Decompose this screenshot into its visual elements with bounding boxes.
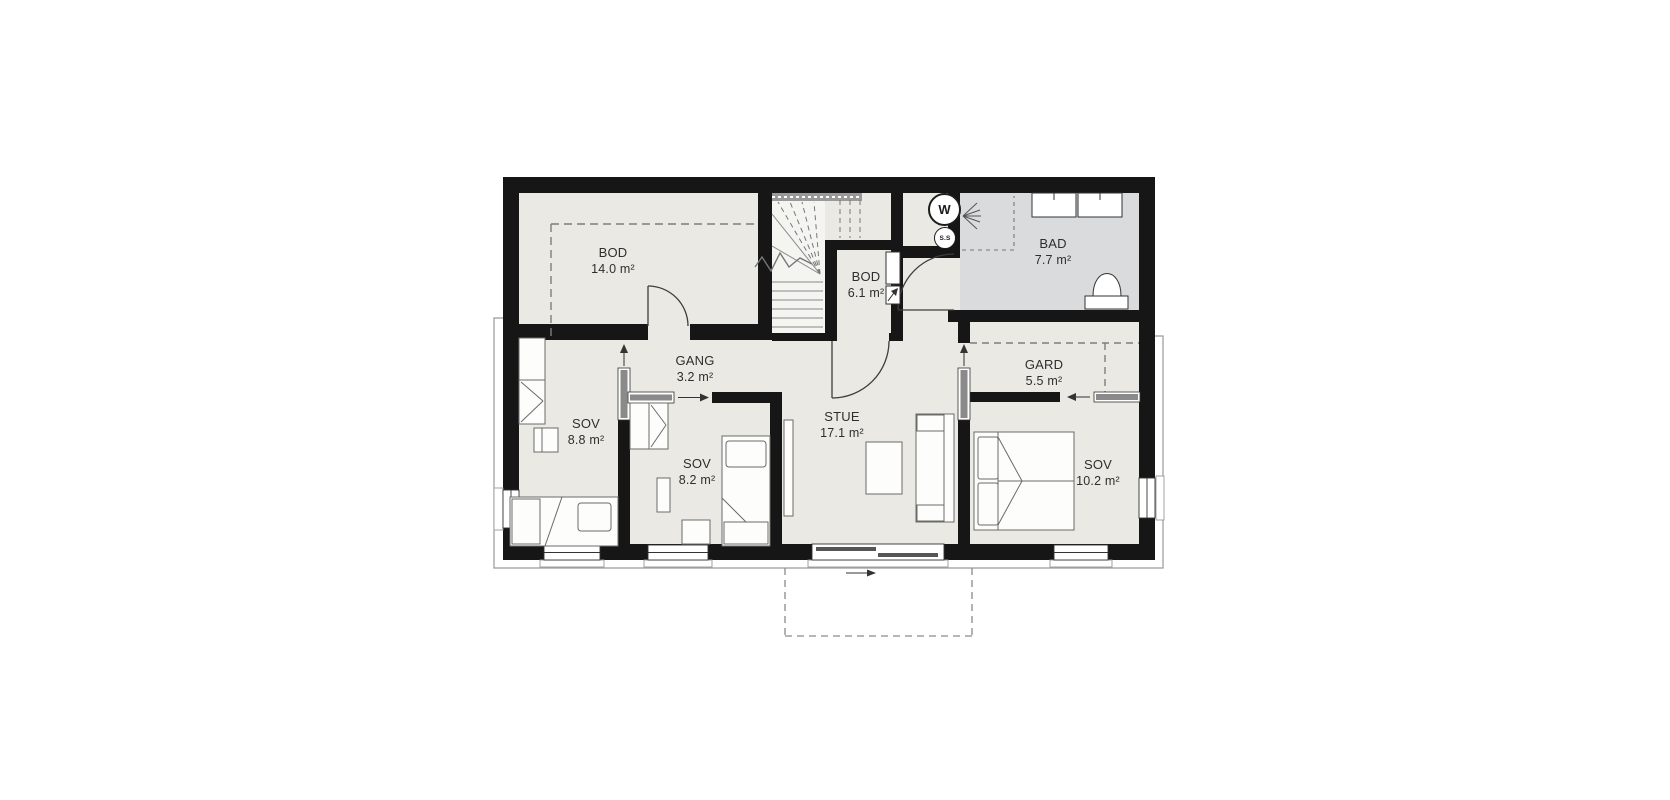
room-name: BOD	[591, 245, 635, 261]
room-name: SOV	[568, 416, 605, 432]
stairwell-floor	[772, 200, 825, 333]
terrace-outline	[785, 568, 972, 636]
room-area: 17.1 m²	[820, 425, 864, 441]
room-area: 7.7 m²	[1035, 252, 1072, 268]
ss-icon: S.S	[934, 227, 956, 249]
room-label-bad: BAD 7.7 m²	[1035, 236, 1072, 268]
floor-plan-canvas	[0, 0, 1670, 800]
room-label-bod14: BOD 14.0 m²	[591, 245, 635, 277]
window-sov102-right	[1139, 476, 1164, 520]
sofa-stue	[916, 414, 954, 522]
floor-plan-page: BOD 14.0 m² BOD 6.1 m² BAD 7.7 m² GANG 3…	[0, 0, 1670, 800]
desk-sov88	[534, 428, 558, 452]
tv-bench-stue	[784, 420, 793, 516]
shelf-sov82	[657, 478, 670, 512]
window-sov88-bottom	[540, 545, 604, 567]
terrace-sliding-door	[808, 544, 948, 577]
room-label-sov102: SOV 10.2 m²	[1076, 457, 1120, 489]
room-label-gang: GANG 3.2 m²	[675, 353, 714, 385]
bed-sov88	[510, 497, 618, 546]
room-label-bod61: BOD 6.1 m²	[848, 269, 885, 301]
room-name: BAD	[1035, 236, 1072, 252]
room-area: 8.8 m²	[568, 432, 605, 448]
tech-cabinet	[886, 252, 900, 304]
nightstand-sov82	[682, 520, 710, 544]
room-area: 8.2 m²	[679, 472, 716, 488]
room-name: SOV	[679, 456, 716, 472]
room-label-sov88: SOV 8.8 m²	[568, 416, 605, 448]
room-area: 6.1 m²	[848, 285, 885, 301]
room-area: 3.2 m²	[675, 369, 714, 385]
room-name: GANG	[675, 353, 714, 369]
bed-sov102	[974, 432, 1074, 530]
room-area: 5.5 m²	[1025, 373, 1063, 389]
room-name: STUE	[820, 409, 864, 425]
room-label-stue: STUE 17.1 m²	[820, 409, 864, 441]
room-label-sov82: SOV 8.2 m²	[679, 456, 716, 488]
room-name: SOV	[1076, 457, 1120, 473]
coffee-table-stue	[866, 442, 902, 494]
wardrobe-sov88	[519, 338, 545, 424]
washer-label: W	[938, 202, 950, 217]
window-sov82-bottom	[644, 545, 712, 567]
room-area: 14.0 m²	[591, 261, 635, 277]
wardrobe-sov82	[630, 403, 668, 449]
window-sov102-bottom	[1050, 545, 1112, 567]
bed-sov82	[722, 436, 770, 546]
room-name: GARD	[1025, 357, 1063, 373]
room-name: BOD	[848, 269, 885, 285]
ss-label: S.S	[939, 235, 950, 242]
washer-icon: W	[928, 193, 961, 226]
room-label-gard: GARD 5.5 m²	[1025, 357, 1063, 389]
room-area: 10.2 m²	[1076, 473, 1120, 489]
